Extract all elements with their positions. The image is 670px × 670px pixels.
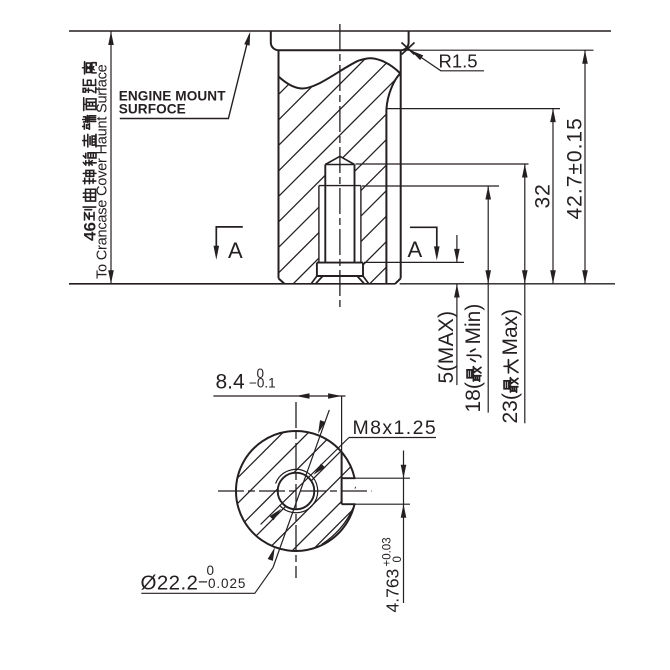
svg-text:23(: 23( <box>499 393 522 423</box>
svg-text:−0.1: −0.1 <box>249 376 276 391</box>
svg-text:SURFOCE: SURFOCE <box>119 102 186 117</box>
svg-text:R1.5: R1.5 <box>439 51 478 72</box>
svg-text:M8x1.25: M8x1.25 <box>353 417 438 439</box>
svg-text:18(: 18( <box>462 382 485 412</box>
svg-text:A: A <box>408 237 423 262</box>
svg-text:4.763: 4.763 <box>383 569 403 613</box>
svg-text:32: 32 <box>532 183 555 208</box>
svg-text:To Crancase Cover Haunt Surfac: To Crancase Cover Haunt Surface <box>95 64 111 279</box>
svg-text:0.025: 0.025 <box>208 576 246 591</box>
svg-text:5(MAX): 5(MAX) <box>435 311 458 384</box>
svg-text:8.4: 8.4 <box>216 371 246 394</box>
svg-text:A: A <box>228 238 243 263</box>
svg-text:0: 0 <box>392 556 404 562</box>
svg-text:42.7±0.15: 42.7±0.15 <box>564 117 587 219</box>
svg-text:Ø22.2: Ø22.2 <box>141 572 199 595</box>
svg-text:Min): Min) <box>462 304 485 345</box>
svg-text:Max): Max) <box>499 309 522 356</box>
